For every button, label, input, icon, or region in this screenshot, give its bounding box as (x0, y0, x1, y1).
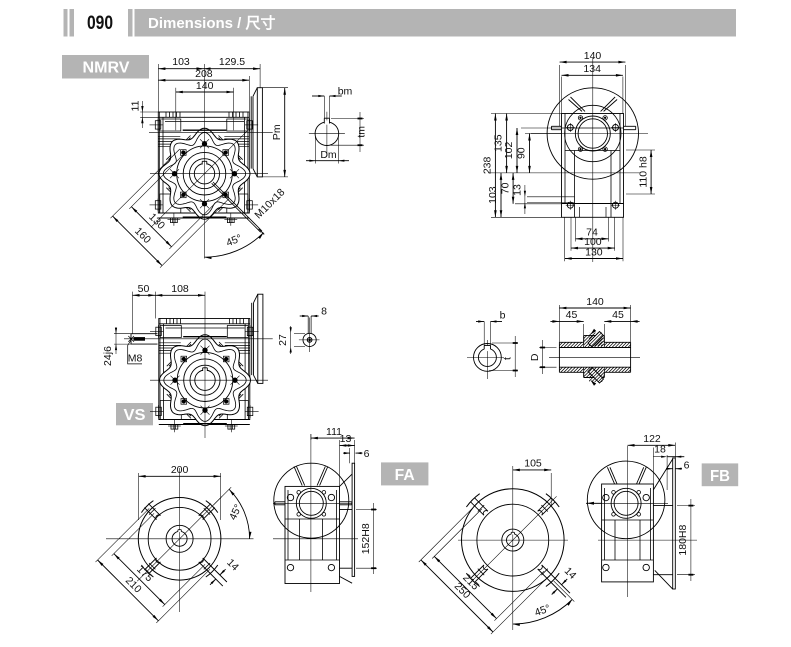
svg-text:103: 103 (487, 186, 499, 204)
svg-text:90: 90 (516, 147, 528, 159)
svg-text:45°: 45° (227, 502, 245, 521)
svg-text:140: 140 (196, 80, 214, 92)
svg-text:8: 8 (321, 306, 327, 318)
svg-text:Dm: Dm (320, 149, 337, 161)
svg-text:NMRV: NMRV (83, 60, 131, 77)
svg-text:50: 50 (138, 283, 150, 295)
svg-text:24j6: 24j6 (102, 346, 114, 366)
svg-text:M8: M8 (128, 353, 143, 365)
svg-text:Pm: Pm (271, 124, 283, 140)
svg-text:45°: 45° (533, 602, 552, 619)
svg-text:208: 208 (195, 68, 213, 80)
svg-text:180H8: 180H8 (677, 524, 689, 555)
svg-text:14: 14 (224, 557, 241, 574)
svg-text:D: D (529, 353, 541, 361)
svg-text:108: 108 (171, 283, 189, 295)
svg-text:105: 105 (524, 458, 542, 470)
svg-text:13: 13 (340, 433, 352, 445)
svg-text:45: 45 (612, 309, 624, 321)
svg-text:bm: bm (338, 86, 353, 98)
svg-text:VS: VS (124, 407, 146, 424)
svg-text:6: 6 (364, 448, 370, 460)
svg-text:11: 11 (130, 100, 142, 111)
svg-text:14: 14 (562, 565, 579, 582)
svg-text:18: 18 (654, 444, 666, 456)
svg-text:200: 200 (171, 464, 189, 476)
svg-text:45°: 45° (224, 232, 243, 249)
svg-text:130: 130 (585, 246, 603, 258)
svg-text:134: 134 (583, 63, 601, 75)
svg-text:FA: FA (395, 467, 415, 484)
svg-text:45: 45 (566, 309, 578, 321)
svg-text:27: 27 (277, 334, 289, 346)
svg-text:129.5: 129.5 (219, 56, 245, 68)
svg-text:M10x18: M10x18 (252, 186, 287, 221)
svg-text:tm: tm (356, 126, 368, 138)
svg-text:Dimensions / 尺寸: Dimensions / 尺寸 (148, 14, 276, 32)
svg-text:t: t (501, 357, 513, 360)
svg-text:FB: FB (710, 468, 730, 485)
svg-text:140: 140 (584, 50, 602, 62)
svg-text:6: 6 (684, 460, 690, 472)
svg-text:140: 140 (586, 296, 604, 308)
svg-text:110 h8: 110 h8 (637, 156, 649, 187)
svg-text:70: 70 (499, 182, 511, 194)
svg-text:b: b (500, 310, 506, 322)
svg-text:102: 102 (503, 141, 515, 159)
svg-text:152H8: 152H8 (360, 523, 372, 554)
svg-text:238: 238 (481, 156, 493, 174)
svg-text:103: 103 (172, 56, 190, 68)
svg-text:13: 13 (511, 184, 523, 196)
svg-text:160: 160 (132, 225, 153, 246)
svg-text:090: 090 (87, 12, 113, 34)
